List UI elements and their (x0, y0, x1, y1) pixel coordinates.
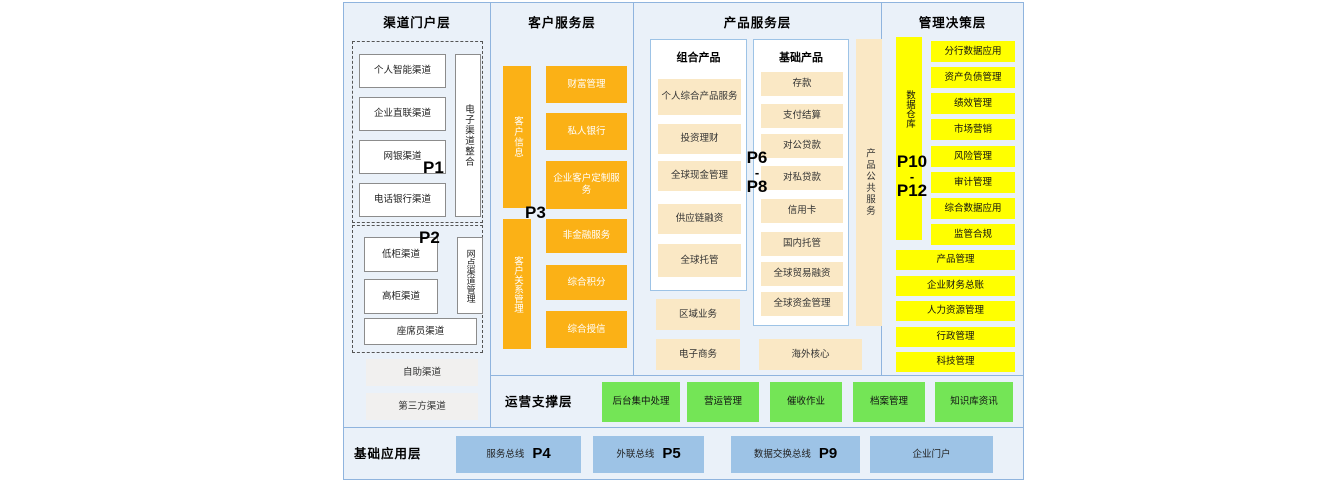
p8-label: P8 (738, 178, 776, 196)
node-audit-mgmt: 审计管理 (931, 172, 1015, 193)
node-hr-mgmt: 人力资源管理 (896, 301, 1015, 321)
node-e-commerce: 电子商务 (656, 339, 740, 370)
service-bus-label: 服务总线 (486, 449, 524, 461)
node-high-counter-channel: 高柜渠道 (364, 279, 438, 314)
node-tech-mgmt: 科技管理 (896, 352, 1015, 372)
management-decision-layer: 管理决策层 数据仓库 P10 - P12 分行数据应用 资产负债管理 绩效管理 … (882, 3, 1023, 375)
node-credit-card: 信用卡 (761, 199, 843, 223)
node-non-financial-service: 非金融服务 (546, 219, 627, 253)
node-customer-info: 客户信息 (503, 66, 531, 208)
node-agent-channel: 座席员渠道 (364, 318, 477, 345)
node-performance-mgmt: 绩效管理 (931, 93, 1015, 114)
node-personal-smart-channel: 个人智能渠道 (359, 54, 446, 88)
p5-label: P5 (662, 445, 680, 464)
architecture-diagram: 渠道门户层 个人智能渠道 企业直联渠道 网银渠道 电话银行渠道 电子渠道整合 P… (343, 2, 1024, 480)
p2-label: P2 (419, 229, 440, 246)
node-branch-channel-mgmt: 网点渠道管理 (457, 237, 483, 314)
node-external-bus: 外联总线 P5 (593, 436, 704, 473)
node-payment-settlement: 支付结算 (761, 104, 843, 128)
node-third-party-channel: 第三方渠道 (366, 393, 478, 420)
node-product-mgmt: 产品管理 (896, 250, 1015, 270)
node-investment-wealth: 投资理财 (658, 124, 741, 154)
node-deposits: 存款 (761, 72, 843, 96)
node-wealth-management: 财富管理 (546, 66, 627, 103)
node-knowledge-base: 知识库资讯 (935, 382, 1013, 422)
node-personal-comprehensive-product: 个人综合产品服务 (658, 79, 741, 115)
node-backoffice-processing: 后台集中处理 (602, 382, 680, 422)
enterprise-portal-label: 企业门户 (912, 449, 950, 461)
node-global-trade-finance: 全球贸易融资 (761, 262, 843, 286)
external-bus-label: 外联总线 (616, 449, 654, 461)
management-layer-title: 管理决策层 (882, 12, 1023, 31)
p12-label: P12 (884, 182, 940, 200)
node-data-warehouse: 数据仓库 (896, 37, 922, 240)
channel-portal-layer: 渠道门户层 个人智能渠道 企业直联渠道 网银渠道 电话银行渠道 电子渠道整合 P… (344, 3, 491, 427)
p9-label: P9 (819, 445, 837, 464)
data-exchange-bus-label: 数据交换总线 (754, 449, 811, 461)
node-self-service-channel: 自助渠道 (366, 359, 478, 386)
node-corporate-direct-channel: 企业直联渠道 (359, 97, 446, 131)
node-supply-chain-finance: 供应链融资 (658, 204, 741, 234)
node-integrated-credit: 综合授信 (546, 311, 627, 348)
operations-support-layer: 运营支撑层 后台集中处理 营运管理 催收作业 档案管理 知识库资讯 (491, 375, 1023, 427)
node-domestic-custody: 国内托管 (761, 232, 843, 256)
product-layer-title: 产品服务层 (634, 12, 881, 31)
node-service-bus: 服务总线 P4 (456, 436, 581, 473)
node-branch-data-app: 分行数据应用 (931, 41, 1015, 62)
node-regulatory-compliance: 监管合规 (931, 224, 1015, 245)
customer-layer-title: 客户服务层 (491, 12, 633, 31)
foundation-layer-title: 基础应用层 (354, 428, 422, 480)
basic-product-title: 基础产品 (754, 49, 848, 65)
p10-p12-label: P10 - P12 (884, 153, 940, 200)
combo-product-group: 组合产品 个人综合产品服务 投资理财 全球现金管理 供应链融资 全球托管 (650, 39, 747, 291)
node-data-exchange-bus: 数据交换总线 P9 (731, 436, 860, 473)
node-e-channel-integration: 电子渠道整合 (455, 54, 481, 217)
foundation-application-layer: 基础应用层 服务总线 P4 外联总线 P5 数据交换总线 P9 企业门户 (344, 427, 1023, 479)
p6-p8-label: P6 - P8 (738, 149, 776, 196)
node-asset-liability-mgmt: 资产负债管理 (931, 67, 1015, 88)
node-marketing: 市场营销 (931, 119, 1015, 140)
product-service-layer: 产品服务层 组合产品 个人综合产品服务 投资理财 全球现金管理 供应链融资 全球… (634, 3, 882, 375)
node-archive-mgmt: 档案管理 (853, 382, 925, 422)
node-overseas-core: 海外核心 (759, 339, 862, 370)
node-admin-mgmt: 行政管理 (896, 327, 1015, 347)
node-regional-business: 区域业务 (656, 299, 740, 330)
e-channel-group: 个人智能渠道 企业直联渠道 网银渠道 电话银行渠道 电子渠道整合 P1 (352, 41, 483, 223)
node-integrated-points: 综合积分 (546, 265, 627, 300)
p1-label: P1 (423, 159, 444, 176)
node-customer-relationship-mgmt: 客户关系管理 (503, 219, 531, 349)
combo-product-title: 组合产品 (651, 49, 746, 65)
node-operations-mgmt: 营运管理 (687, 382, 759, 422)
node-collection-ops: 催收作业 (770, 382, 842, 422)
node-global-fund-mgmt: 全球资金管理 (761, 292, 843, 316)
node-risk-mgmt: 风险管理 (931, 146, 1015, 167)
channel-layer-title: 渠道门户层 (344, 12, 490, 31)
node-comprehensive-data-app: 综合数据应用 (931, 198, 1015, 219)
node-phone-bank-channel: 电话银行渠道 (359, 183, 446, 217)
node-product-public-service: 产品公共服务 (856, 39, 882, 326)
customer-service-layer: 客户服务层 客户信息 财富管理 私人银行 企业客户定制服务 P3 客户关系管理 … (491, 3, 634, 375)
branch-channel-group: 低柜渠道 高柜渠道 网点渠道管理 座席员渠道 P2 (352, 225, 483, 353)
p4-label: P4 (532, 445, 550, 464)
operations-layer-title: 运营支撑层 (505, 376, 573, 428)
node-global-custody: 全球托管 (658, 244, 741, 277)
node-private-banking: 私人银行 (546, 113, 627, 150)
node-global-cash-mgmt: 全球现金管理 (658, 161, 741, 191)
node-corporate-custom-service: 企业客户定制服务 (546, 161, 627, 209)
node-enterprise-portal: 企业门户 (870, 436, 993, 473)
node-enterprise-general-ledger: 企业财务总账 (896, 276, 1015, 296)
